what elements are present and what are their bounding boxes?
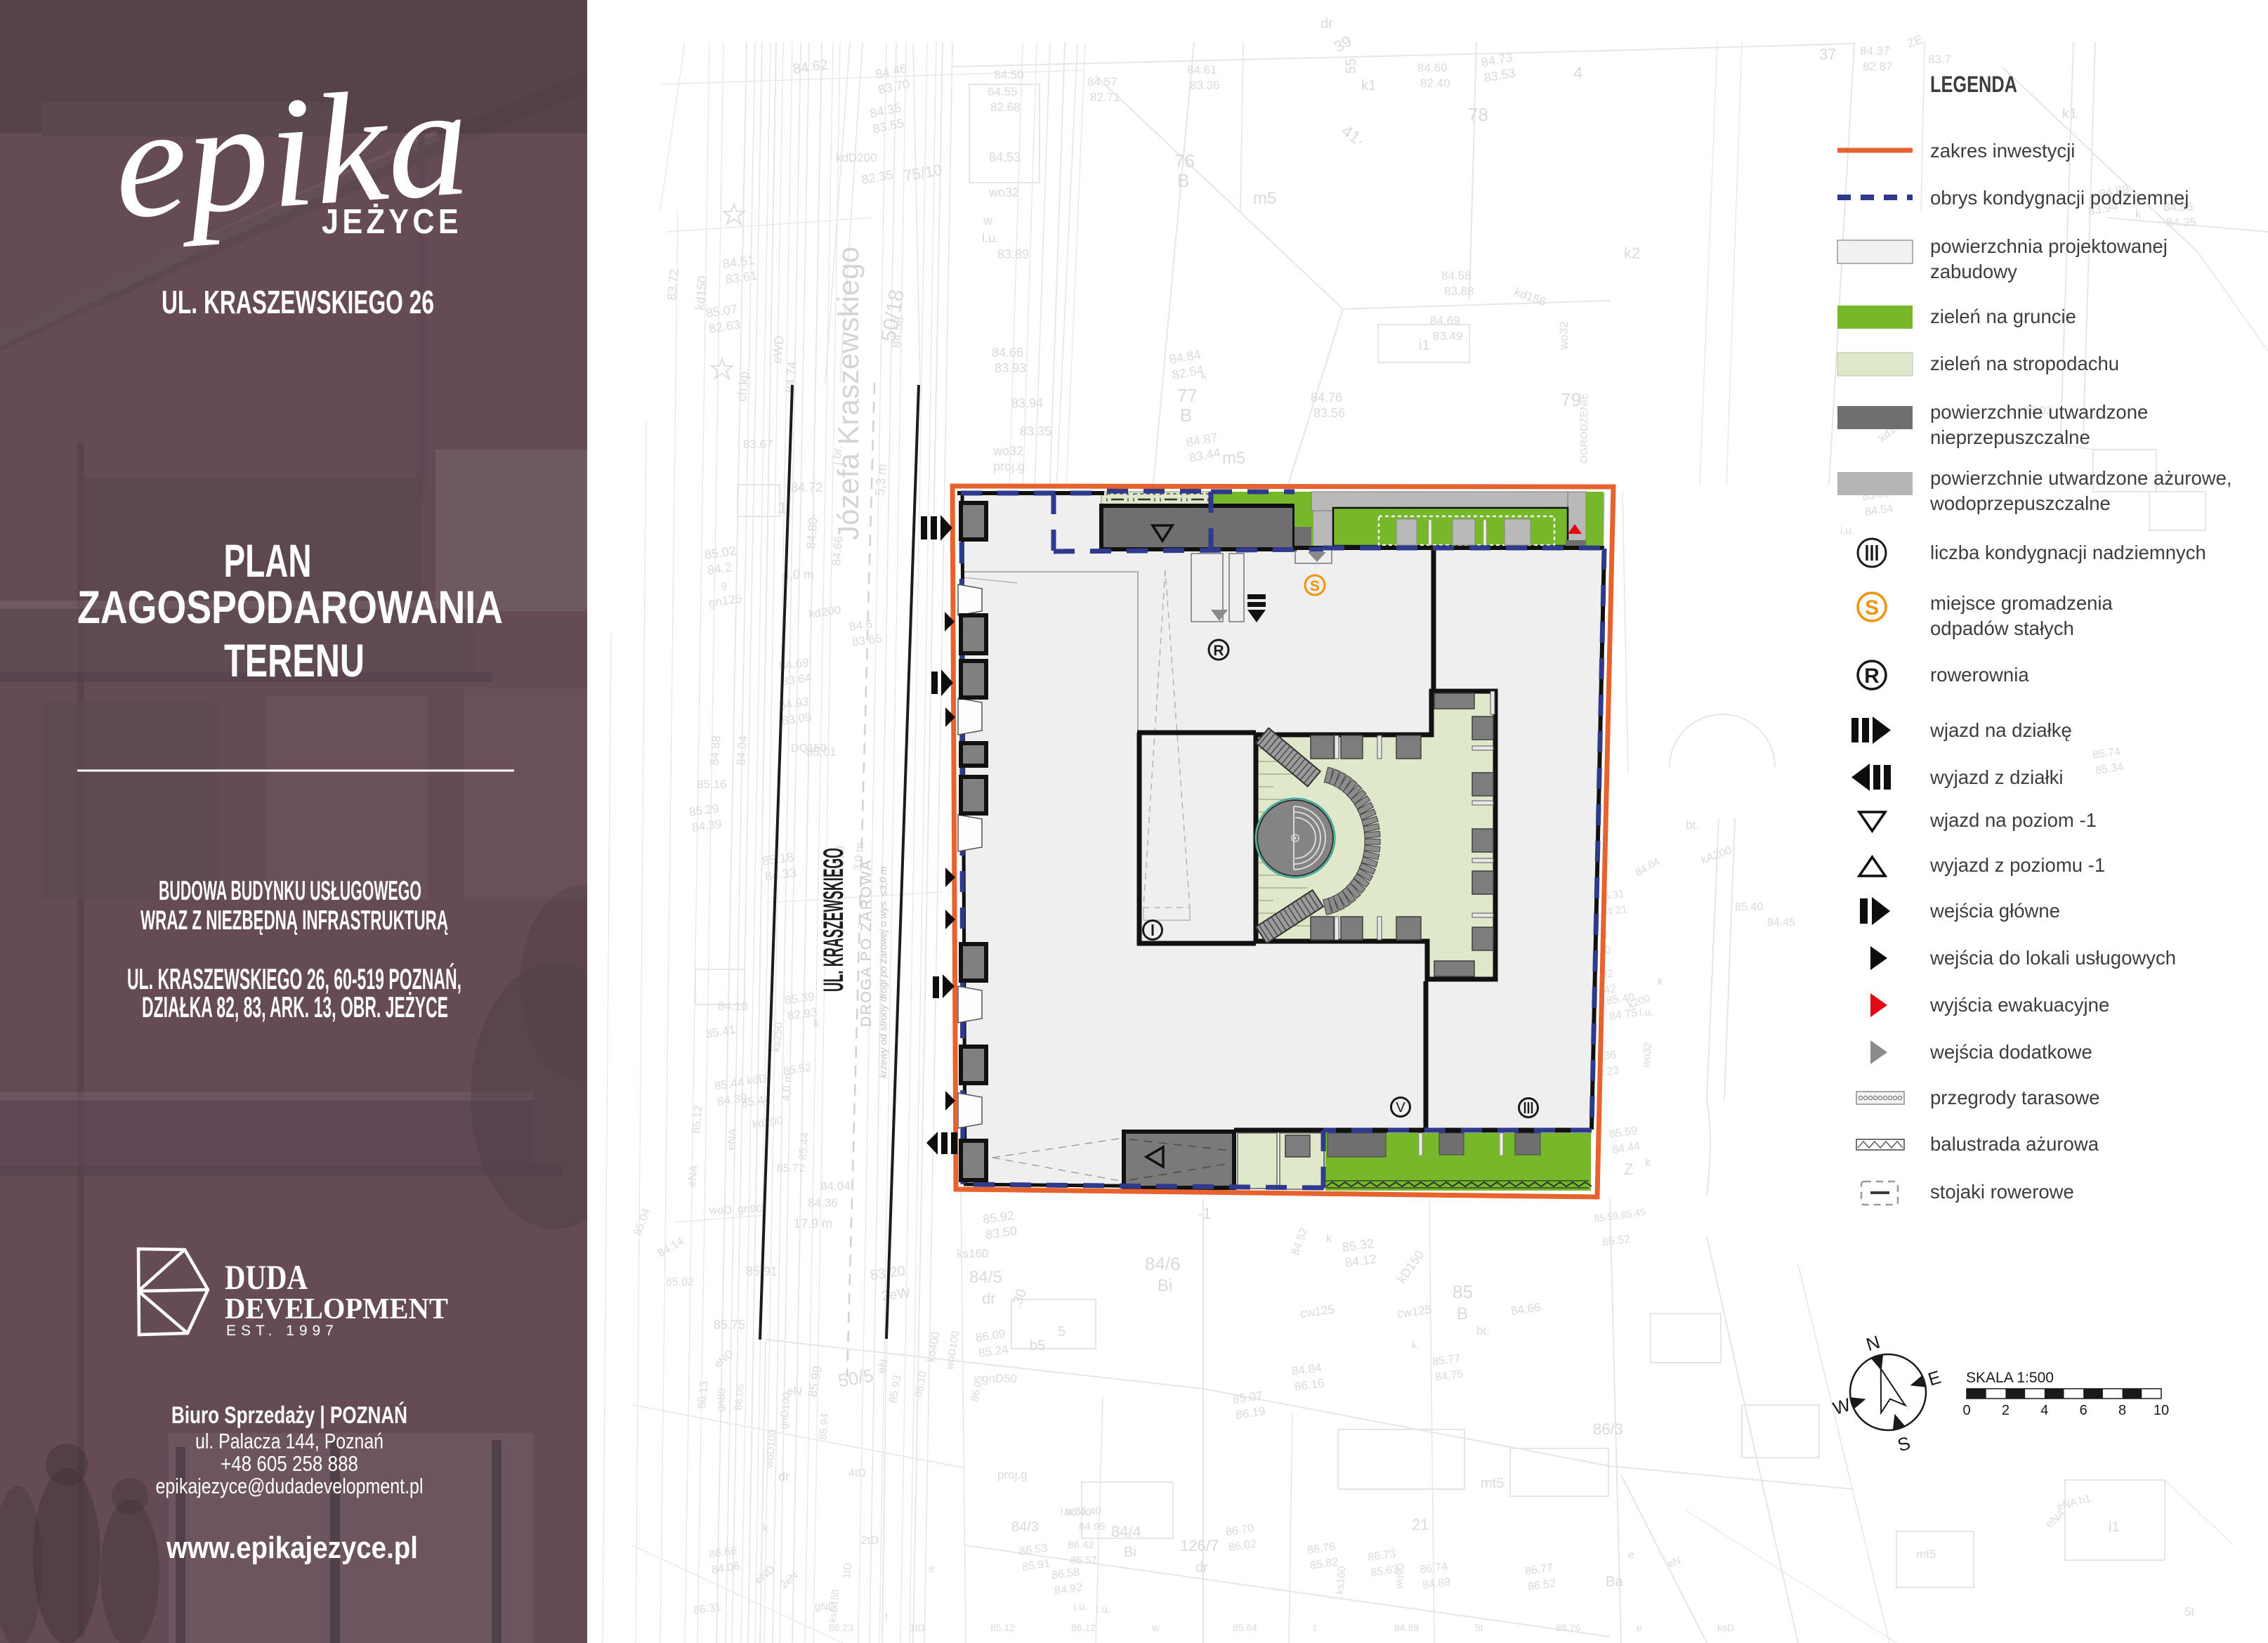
svg-text:4: 4 (1573, 64, 1582, 83)
svg-text:wyjścia ewakuacyjne: wyjścia ewakuacyjne (1929, 994, 2109, 1016)
svg-text:85.16: 85.16 (697, 778, 727, 791)
svg-text:126/7: 126/7 (1180, 1537, 1219, 1554)
svg-text:84.37: 84.37 (1860, 44, 1890, 58)
svg-text:8: 8 (2118, 1403, 2126, 1418)
svg-text:83.89: 83.89 (997, 247, 1029, 261)
svg-text:21: 21 (1412, 1516, 1429, 1533)
svg-text:N: N (1863, 1331, 1882, 1355)
svg-text:55: 55 (1344, 58, 1359, 74)
svg-text:85.12: 85.12 (690, 1105, 704, 1134)
svg-text:DZIAŁKA 82, 83, ARK. 13, OBR.: DZIAŁKA 82, 83, ARK. 13, OBR. JEŻYCE (142, 990, 448, 1023)
svg-text:UL. KRASZEWSKIEGO: UL. KRASZEWSKIEGO (818, 848, 849, 992)
svg-text:zieleń na stropodachu: zieleń na stropodachu (1930, 353, 2119, 374)
svg-text:84.52: 84.52 (1290, 1226, 1311, 1257)
svg-text:83.35: 83.35 (1020, 424, 1051, 438)
svg-text:85.52: 85.52 (1601, 1233, 1631, 1249)
svg-text:84/4: 84/4 (1111, 1523, 1141, 1540)
svg-text:+48 605 258 888: +48 605 258 888 (221, 1451, 358, 1476)
svg-text:5t: 5t (2184, 1605, 2194, 1618)
svg-text:17,9 m: 17,9 m (794, 1217, 832, 1231)
svg-text:bt.: bt. (1686, 818, 1699, 832)
svg-text:84/5: 84/5 (969, 1268, 1002, 1287)
svg-text:ch.kp.: ch.kp. (735, 367, 752, 402)
svg-text:85.94: 85.94 (817, 1413, 831, 1440)
svg-text:83.72: 83.72 (664, 268, 681, 301)
svg-text:86.12: 86.12 (1071, 1622, 1096, 1633)
svg-text:TERENU: TERENU (224, 634, 365, 686)
svg-text:l.u.: l.u. (982, 231, 999, 245)
svg-text:e: e (929, 1563, 934, 1575)
svg-text:bt.: bt. (1476, 1324, 1490, 1337)
svg-text:85.07: 85.07 (1232, 1389, 1264, 1406)
svg-text:0: 0 (1962, 1403, 1970, 1418)
svg-text:86.53: 86.53 (1018, 1543, 1048, 1558)
svg-text:wjazd na poziom -1: wjazd na poziom -1 (1929, 809, 2097, 831)
svg-text:84.04: 84.04 (820, 1179, 851, 1193)
svg-text:woD100: woD100 (763, 1429, 779, 1469)
svg-text:84.75: 84.75 (1434, 1368, 1464, 1384)
svg-text:84.54: 84.54 (1864, 503, 1894, 518)
svg-text:wejścia do lokali usługowych: wejścia do lokali usługowych (1929, 947, 2176, 969)
svg-text:w: w (983, 214, 993, 228)
svg-text:84.53: 84.53 (989, 150, 1021, 164)
svg-text:i1: i1 (1419, 338, 1430, 353)
svg-text:ksD150: ksD150 (827, 1588, 841, 1623)
svg-text:t: t (1313, 1622, 1316, 1633)
svg-text:R: R (1213, 643, 1224, 659)
svg-text:wo32: wo32 (988, 185, 1019, 199)
svg-text:86.16: 86.16 (1294, 1376, 1325, 1394)
svg-text:eND: eND (712, 1348, 736, 1370)
svg-text:ZE: ZE (1906, 32, 1925, 50)
svg-text:eNA: eNA (686, 1165, 700, 1188)
svg-text:84.2: 84.2 (707, 560, 733, 577)
svg-text:39: 39 (1331, 32, 1355, 55)
svg-text:1tD: 1tD (910, 1622, 925, 1633)
svg-text:k: k (1658, 976, 1663, 988)
svg-text:85.32: 85.32 (1342, 1236, 1375, 1255)
svg-text:2: 2 (2002, 1403, 2010, 1418)
svg-text:85.91: 85.91 (1021, 1558, 1051, 1573)
svg-text:85.82: 85.82 (1309, 1557, 1339, 1572)
svg-text:85.01: 85.01 (806, 745, 837, 759)
svg-text:2tD: 2tD (861, 1535, 879, 1547)
svg-text:ko400: ko400 (925, 1331, 942, 1363)
svg-text:i1: i1 (2109, 1519, 2120, 1535)
svg-text:Bi: Bi (1158, 1276, 1172, 1295)
svg-text:kD150: kD150 (1394, 1248, 1427, 1285)
svg-text:82.35: 82.35 (860, 167, 894, 187)
svg-text:10: 10 (2154, 1403, 2169, 1418)
svg-text:84.39: 84.39 (691, 817, 723, 834)
svg-text:mt5: mt5 (1916, 1547, 1936, 1561)
svg-text:wejścia główne: wejścia główne (1929, 900, 2060, 922)
svg-text:85.44: 85.44 (797, 1132, 811, 1160)
svg-text:85.59: 85.59 (1608, 1125, 1638, 1141)
svg-text:82.68: 82.68 (990, 100, 1021, 114)
svg-text:86.70: 86.70 (1225, 1523, 1254, 1538)
svg-text:83.7: 83.7 (1928, 53, 1951, 66)
svg-text:S: S (1895, 1432, 1913, 1456)
svg-text:76: 76 (1174, 150, 1195, 171)
svg-text:gn125: gn125 (708, 592, 742, 610)
svg-text:85.39: 85.39 (784, 990, 815, 1007)
svg-text:wo32: wo32 (1557, 321, 1571, 351)
svg-text:WRAZ Z NIEZBĘDNĄ INFRASTRUKTUR: WRAZ Z NIEZBĘDNĄ INFRASTRUKTURĄ (140, 905, 448, 936)
svg-text:85.44: 85.44 (714, 1075, 745, 1093)
svg-text:85.24: 85.24 (978, 1342, 1009, 1360)
svg-text:wodoprzepuszczalne: wodoprzepuszczalne (1929, 492, 2111, 514)
svg-text:84.72: 84.72 (791, 480, 822, 495)
svg-text:84.62: 84.62 (792, 57, 830, 77)
svg-text:i.u.: i.u. (1639, 1007, 1653, 1019)
svg-text:84.66: 84.66 (992, 346, 1023, 360)
svg-text:83.50: 83.50 (985, 1224, 1018, 1242)
svg-text:84.14: 84.14 (656, 1236, 686, 1260)
svg-text:dr: dr (1320, 16, 1333, 32)
svg-text:83.93: 83.93 (995, 361, 1026, 375)
svg-text:84.58: 84.58 (1441, 269, 1471, 282)
svg-text:k: k (763, 1522, 768, 1534)
svg-text:85.57: 85.57 (1070, 1554, 1097, 1566)
svg-text:w: w (1151, 1622, 1160, 1633)
svg-text:gnD50: gnD50 (982, 1372, 1017, 1385)
svg-text:eWD: eWD (770, 335, 786, 365)
svg-text:78: 78 (1468, 104, 1488, 125)
svg-text:83.49: 83.49 (1433, 329, 1463, 343)
svg-text:LEGENDA: LEGENDA (1930, 72, 2017, 97)
svg-text:9: 9 (721, 581, 727, 593)
svg-text:4,0 m: 4,0 m (780, 1073, 794, 1101)
svg-text:86.58: 86.58 (1051, 1566, 1080, 1582)
svg-text:eN: eN (1666, 1554, 1683, 1571)
svg-text:dr: dr (982, 1290, 996, 1307)
svg-text:cw125: cw125 (1299, 1302, 1335, 1321)
svg-text:85.74: 85.74 (2092, 746, 2121, 761)
svg-text:86/3: 86/3 (1593, 1420, 1623, 1438)
svg-text:przegrody tarasowe: przegrody tarasowe (1930, 1087, 2100, 1108)
svg-text:woD100: woD100 (943, 1330, 962, 1371)
svg-text:86.13: 86.13 (696, 1380, 710, 1409)
svg-text:k2: k2 (1624, 244, 1640, 262)
svg-text:powierzchnie utwardzone ażurow: powierzchnie utwardzone ażurowe, (1930, 467, 2232, 489)
svg-text:84.50: 84.50 (994, 68, 1024, 81)
svg-text:www.epikajezyce.pl: www.epikajezyce.pl (166, 1531, 418, 1565)
svg-text:84.60: 84.60 (1417, 61, 1448, 74)
svg-text:kd200: kd200 (808, 603, 842, 621)
svg-text:84/3: 84/3 (1011, 1519, 1039, 1535)
svg-text:wejścia dodatkowe: wejścia dodatkowe (1929, 1041, 2092, 1063)
svg-text:84/6: 84/6 (1145, 1253, 1181, 1274)
svg-text:75/10: 75/10 (903, 161, 944, 185)
svg-text:UL. KRASZEWSKIEGO 26: UL. KRASZEWSKIEGO 26 (162, 284, 434, 320)
svg-text:rowerownia: rowerownia (1930, 664, 2029, 686)
svg-text:k1: k1 (2062, 106, 2077, 122)
svg-text:ul. Palacza 144, Poznań: ul. Palacza 144, Poznań (195, 1429, 384, 1453)
svg-text:84.69: 84.69 (1430, 314, 1460, 327)
svg-text:86.77: 86.77 (1524, 1562, 1554, 1578)
svg-text:86.74: 86.74 (1419, 1561, 1448, 1576)
svg-text:k: k (1645, 1157, 1651, 1169)
svg-text:86.05: 86.05 (733, 1383, 747, 1410)
svg-text:kdD200: kdD200 (836, 151, 877, 164)
svg-text:DEVELOPMENT: DEVELOPMENT (225, 1293, 448, 1325)
svg-text:JEŻYCE: JEŻYCE (322, 203, 462, 241)
svg-text:wo90: wo90 (1393, 1563, 1407, 1590)
svg-text:83.61: 83.61 (725, 268, 758, 287)
svg-text:i.u.: i.u. (1096, 1604, 1110, 1616)
svg-text:S: S (1310, 578, 1320, 594)
svg-text:84.84: 84.84 (1291, 1361, 1323, 1378)
svg-text:84.44: 84.44 (1611, 1141, 1641, 1156)
svg-text:powierzchnie utwardzone: powierzchnie utwardzone (1930, 401, 2148, 423)
svg-text:85.02: 85.02 (704, 544, 737, 562)
svg-text:83.67: 83.67 (743, 438, 773, 451)
svg-text:84.95: 84.95 (1079, 1521, 1106, 1533)
svg-text:wo32: wo32 (992, 444, 1023, 458)
svg-text:82.63: 82.63 (708, 318, 741, 336)
svg-text:ks160: ks160 (1334, 1566, 1348, 1595)
svg-text:85.29: 85.29 (688, 801, 720, 819)
svg-text:krzewy od strony drogi po żaro: krzewy od strony drogi po żarowej o wys.… (877, 866, 889, 1078)
svg-text:86.42: 86.42 (1068, 1539, 1094, 1551)
svg-text:1: 1 (778, 499, 787, 516)
svg-text:84.88: 84.88 (707, 735, 723, 766)
svg-text:S: S (1865, 596, 1879, 620)
svg-text:eNA: eNA (726, 1128, 740, 1151)
svg-text:86.10: 86.10 (912, 1370, 929, 1399)
svg-text:1tD: 1tD (841, 1562, 854, 1579)
svg-text:84.04: 84.04 (734, 735, 750, 766)
svg-text:k: k (813, 1018, 820, 1030)
svg-text:gn90: gn90 (738, 1203, 763, 1215)
svg-text:86.52: 86.52 (1527, 1578, 1556, 1593)
svg-text:balustrada ażurowa: balustrada ażurowa (1930, 1133, 2099, 1155)
svg-text:.30: .30 (1009, 1287, 1030, 1311)
svg-text:50/5: 50/5 (837, 1365, 875, 1392)
svg-text:86.31: 86.31 (693, 1602, 722, 1617)
svg-text:86.19: 86.19 (1235, 1404, 1266, 1422)
svg-text:85.72: 85.72 (777, 1163, 805, 1174)
svg-text:ZAGOSPODAROWANIA: ZAGOSPODAROWANIA (77, 581, 503, 633)
svg-text:kd156: kd156 (1513, 285, 1548, 309)
svg-text:proj.g: proj.g (993, 459, 1025, 473)
svg-text:DUDA: DUDA (225, 1257, 308, 1297)
svg-text:e: e (1628, 1549, 1634, 1561)
svg-text:eNA h1.: eNA h1. (2056, 1492, 2095, 1513)
svg-text:SKALA 1:500: SKALA 1:500 (1966, 1370, 2054, 1386)
svg-text:Z: Z (1624, 1160, 1633, 1178)
svg-text:85.99: 85.99 (805, 1365, 825, 1399)
svg-text:84.6: 84.6 (848, 617, 873, 634)
svg-text:83.09: 83.09 (781, 710, 813, 728)
svg-text:86.76: 86.76 (1556, 1622, 1580, 1633)
svg-text:OGRODZENIE: OGRODZENIE (1578, 393, 1590, 464)
svg-text:84.92: 84.92 (1054, 1582, 1083, 1597)
svg-text:86.05: 86.05 (969, 1375, 985, 1403)
svg-text:85.02: 85.02 (666, 1276, 694, 1288)
svg-text:84.89: 84.89 (1422, 1576, 1451, 1592)
svg-text:84.35: 84.35 (2166, 216, 2196, 229)
svg-text:cw125: cw125 (1396, 1302, 1432, 1321)
svg-text:85.59,85.45: 85.59,85.45 (1593, 1206, 1646, 1224)
svg-text:zabudowy: zabudowy (1930, 261, 2017, 282)
svg-text:86.09: 86.09 (975, 1327, 1007, 1344)
svg-text:i.u.86.40: i.u.86.40 (1061, 1505, 1101, 1517)
svg-text:84.61: 84.61 (1187, 63, 1217, 77)
svg-text:64.55: 64.55 (988, 85, 1018, 98)
svg-text:k: k (1201, 370, 1207, 382)
svg-text:k1: k1 (1361, 78, 1376, 93)
svg-text:84.36: 84.36 (808, 1196, 838, 1210)
svg-text:V: V (1396, 1100, 1405, 1115)
svg-text:84.80·: 84.80· (804, 513, 820, 550)
svg-text:t: t (885, 1611, 889, 1623)
svg-text:liczba kondygnacji nadziemnych: liczba kondygnacji nadziemnych (1930, 542, 2206, 563)
svg-text:m5: m5 (1253, 189, 1276, 208)
svg-text:i.u.: i.u. (1840, 525, 1854, 537)
svg-text:obrys kondygnacji podziemnej: obrys kondygnacji podziemnej (1930, 187, 2189, 209)
svg-text:gnD100: gnD100 (778, 1392, 793, 1430)
svg-text:k: k (2135, 209, 2142, 221)
svg-text:B: B (1457, 1304, 1468, 1323)
svg-text:85: 85 (1453, 1281, 1473, 1302)
svg-text:stojaki rowerowe: stojaki rowerowe (1930, 1181, 2074, 1203)
svg-text:EST. 1997: EST. 1997 (226, 1323, 339, 1339)
svg-text:82.87: 82.87 (1863, 60, 1893, 73)
svg-text:zieleń na gruncie: zieleń na gruncie (1930, 306, 2076, 327)
svg-text:B: B (1177, 170, 1189, 191)
svg-text:5t: 5t (1475, 1622, 1483, 1633)
svg-text:woD: woD (709, 1205, 732, 1217)
svg-text:Biuro Sprzedaży | POZNAŃ: Biuro Sprzedaży | POZNAŃ (171, 1402, 407, 1429)
svg-text:85.41: 85.41 (704, 1023, 736, 1041)
svg-text:6: 6 (2080, 1403, 2087, 1418)
svg-text:PLAN: PLAN (224, 535, 312, 587)
svg-text:83.88: 83.88 (1444, 284, 1474, 298)
svg-text:86.76: 86.76 (1306, 1541, 1336, 1557)
svg-text:86.73: 86.73 (1367, 1548, 1396, 1564)
svg-text:84.89: 84.89 (1394, 1622, 1419, 1633)
svg-text:Ba: Ba (1606, 1574, 1623, 1590)
svg-text:84.12: 84.12 (1344, 1252, 1377, 1270)
svg-text:nieprzepuszczalne: nieprzepuszczalne (1930, 426, 2090, 448)
svg-text:Józefa Kraszewskiego: Józefa Kraszewskiego (832, 247, 865, 540)
svg-text:86.23: 86.23 (829, 1622, 853, 1633)
svg-text:ksD: ksD (1717, 1622, 1734, 1633)
svg-text:5: 5 (1058, 1324, 1066, 1340)
svg-text:84.06: 84.06 (711, 1561, 740, 1576)
svg-text:kdD: kdD (746, 1073, 768, 1087)
svg-text:82.40: 82.40 (1420, 77, 1450, 90)
svg-text:86.02: 86.02 (1228, 1538, 1257, 1554)
svg-text:m5: m5 (1222, 449, 1245, 468)
svg-text:4: 4 (2040, 1403, 2048, 1418)
svg-text:R: R (1864, 665, 1880, 688)
svg-text:wo32: wo32 (1640, 1042, 1654, 1068)
svg-text:eN: eN (876, 1359, 890, 1375)
svg-text:gn80: gn80 (714, 1388, 728, 1413)
svg-text:dr: dr (1195, 1560, 1208, 1576)
svg-text:85.40: 85.40 (1735, 901, 1763, 913)
svg-text:E: E (1925, 1366, 1943, 1390)
svg-text:ks160: ks160 (957, 1247, 988, 1260)
svg-text:83.36: 83.36 (1190, 79, 1220, 92)
svg-text:83.64: 83.64 (781, 671, 813, 688)
svg-text:dr: dr (778, 1469, 789, 1484)
svg-text:77: 77 (1177, 385, 1198, 406)
svg-text:e: e (1637, 1622, 1642, 1633)
svg-text:b5: b5 (1030, 1338, 1045, 1354)
svg-text:k: k (1412, 1340, 1417, 1351)
svg-text:85.34: 85.34 (2095, 761, 2124, 777)
svg-text:83.94: 83.94 (1011, 396, 1043, 410)
svg-text:4tD: 4tD (848, 1467, 866, 1479)
svg-text:kd150: kd150 (693, 275, 709, 311)
svg-text:84.76: 84.76 (1311, 391, 1342, 405)
svg-text:B: B (1180, 405, 1192, 426)
svg-text:odpadów stałych: odpadów stałych (1930, 617, 2074, 639)
svg-text:epikajezyce@dudadevelopment.pl: epikajezyce@dudadevelopment.pl (156, 1474, 424, 1498)
svg-text:Bi: Bi (1124, 1545, 1136, 1560)
svg-text:powierzchnia projektowanej: powierzchnia projektowanej (1930, 235, 2168, 257)
svg-text:84.66: 84.66 (1510, 1300, 1542, 1318)
svg-text:wjazd na działkę: wjazd na działkę (1929, 719, 2072, 741)
svg-text:85.04: 85.04 (632, 1207, 653, 1238)
svg-text:84.51: 84.51 (722, 253, 755, 271)
svg-text:zakres inwestycji: zakres inwestycji (1930, 140, 2075, 162)
svg-text:proj.g: proj.g (997, 1468, 1028, 1481)
svg-text:i.u.: i.u. (1073, 1601, 1088, 1613)
svg-text:wyjazd z poziomu -1: wyjazd z poziomu -1 (1929, 854, 2105, 876)
svg-text:41·: 41· (1338, 122, 1369, 151)
svg-text:85.77: 85.77 (1431, 1353, 1461, 1368)
svg-text:DROGA PO ŻAROWA: DROGA PO ŻAROWA (858, 859, 874, 1027)
svg-text:85.07: 85.07 (705, 302, 738, 320)
svg-text:83.56: 83.56 (1313, 406, 1345, 420)
svg-text:84.57: 84.57 (1087, 75, 1117, 89)
svg-text:85.18: 85.18 (761, 850, 794, 868)
svg-text:k: k (1326, 1233, 1332, 1245)
svg-text:85.64: 85.64 (1233, 1622, 1257, 1633)
svg-text:85.75: 85.75 (714, 1318, 745, 1332)
svg-text:mt5: mt5 (1481, 1476, 1504, 1491)
svg-text:BUDOWA BUDYNKU USŁUGOWEGO: BUDOWA BUDYNKU USŁUGOWEGO (159, 876, 421, 906)
svg-text:wyjazd z działki: wyjazd z działki (1929, 766, 2064, 788)
svg-text:82.71: 82.71 (1090, 91, 1120, 104)
svg-text:2eW: 2eW (881, 1285, 912, 1304)
svg-text:84.04: 84.04 (1634, 856, 1663, 879)
svg-text:85.92: 85.92 (982, 1208, 1015, 1226)
svg-text:85.12: 85.12 (990, 1622, 1015, 1633)
svg-text:-1: -1 (1198, 1205, 1212, 1222)
svg-text:37: 37 (1819, 46, 1836, 63)
svg-text:84.18: 84.18 (718, 1000, 748, 1013)
svg-text:5,3 m: 5,3 m (872, 464, 889, 497)
svg-text:84.45: 84.45 (1767, 917, 1795, 929)
svg-text:miejsce gromadzenia: miejsce gromadzenia (1930, 592, 2113, 614)
svg-text:85.93: 85.93 (887, 1374, 904, 1403)
